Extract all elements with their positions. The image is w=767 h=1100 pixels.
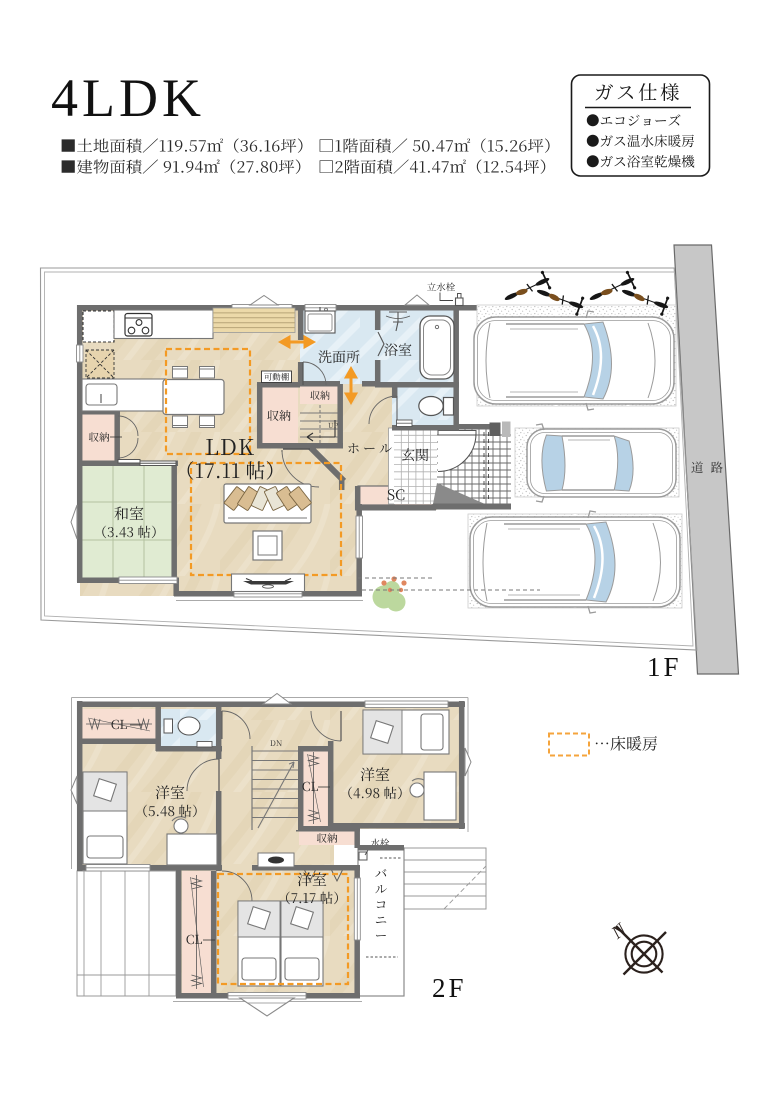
svg-text:4LDK: 4LDK: [51, 68, 205, 128]
svg-text:1F: 1F: [647, 652, 682, 682]
svg-text:2F: 2F: [432, 973, 467, 1003]
